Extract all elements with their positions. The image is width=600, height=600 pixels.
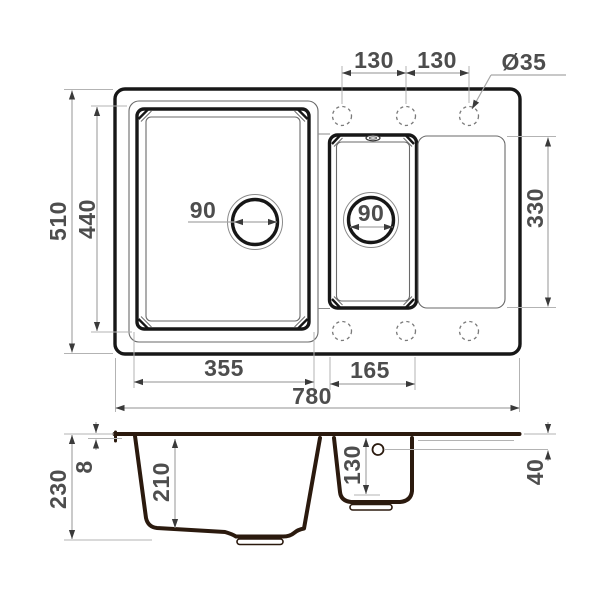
section-view-dimensions: 230 8 210 130 40 bbox=[45, 422, 556, 540]
main-bowl-drain: 90 bbox=[188, 195, 283, 250]
dim-hole-spacing-left: 130 bbox=[354, 47, 394, 73]
dim-hole-diameter: Ø35 bbox=[502, 49, 547, 75]
small-drain-fitting bbox=[350, 505, 392, 511]
drawing-canvas: 90 90 bbox=[0, 0, 600, 600]
dim-hole-spacing-right: 130 bbox=[417, 47, 457, 73]
faucet-hole-marker bbox=[460, 322, 479, 341]
main-drain-fitting bbox=[237, 539, 283, 545]
top-view-dimensions: 130 130 Ø35 510 440 330 355 bbox=[45, 47, 566, 412]
dim-overall-height: 230 bbox=[45, 469, 71, 509]
dim-main-bowl-width: 355 bbox=[204, 355, 244, 381]
dim-small-bowl-inner-depth: 130 bbox=[339, 445, 365, 485]
faucet-hole-marker bbox=[397, 322, 416, 341]
faucet-hole-marker bbox=[333, 322, 352, 341]
dim-drainboard-length: 330 bbox=[522, 188, 548, 228]
main-bowl: 90 bbox=[129, 101, 318, 342]
small-bowl-drain: 90 bbox=[344, 193, 399, 248]
dim-rim-thickness: 8 bbox=[71, 460, 97, 473]
sink-dimension-drawing: 90 90 bbox=[0, 0, 600, 600]
drainboard-outline bbox=[418, 136, 505, 308]
dim-overall-width: 780 bbox=[292, 383, 332, 409]
dim-main-bowl-inner-depth: 210 bbox=[148, 462, 174, 502]
dim-overall-depth: 510 bbox=[45, 201, 71, 241]
dim-main-bowl-depth: 440 bbox=[74, 199, 100, 239]
faucet-hole-marker bbox=[397, 107, 416, 126]
dim-main-drain: 90 bbox=[190, 197, 217, 223]
overflow-hole bbox=[373, 444, 384, 455]
faucet-hole-marker bbox=[460, 107, 479, 126]
hole-diameter-leader bbox=[472, 75, 491, 109]
overflow-notch bbox=[366, 135, 380, 141]
dim-small-drain: 90 bbox=[358, 200, 385, 226]
dim-small-bowl-width: 165 bbox=[350, 357, 390, 383]
main-bowl-outline bbox=[137, 109, 309, 329]
small-bowl: 90 bbox=[330, 135, 417, 308]
faucet-hole-marker bbox=[333, 107, 352, 126]
top-view: 90 90 bbox=[45, 47, 566, 412]
section-view: 230 8 210 130 40 bbox=[45, 422, 556, 545]
dim-drainboard-drop: 40 bbox=[522, 459, 548, 486]
